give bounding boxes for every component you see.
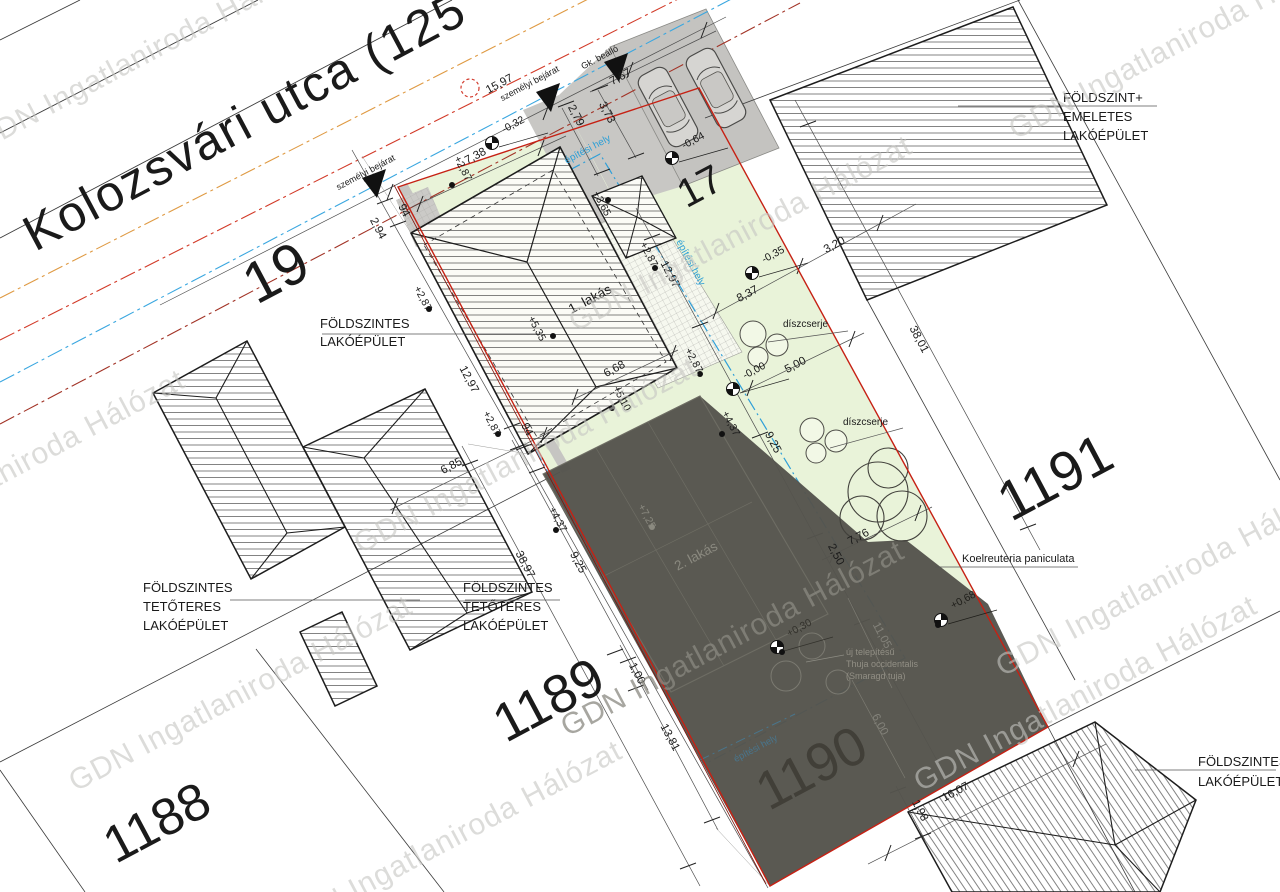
- label-koelreuteria: Koelreuteria paniculata: [962, 553, 1075, 565]
- benchmark-icon: [746, 267, 759, 280]
- site-plan-page: Kolozsvári utca (12519171188118911901191…: [0, 0, 1280, 892]
- label-thuja-l1: új telepítésű: [846, 647, 895, 657]
- label-shrub-2: díszcserje: [843, 417, 888, 428]
- label-thuja-l2: Thuja occidentalis: [846, 659, 919, 669]
- benchmark-icon: [727, 383, 740, 396]
- shrub-icon: [825, 430, 847, 452]
- label-bld3-l2: TETŐTERES: [143, 599, 221, 614]
- label-thuja-l3: (Smaragd tuja): [846, 671, 906, 681]
- label-bld2-l3: LAKÓÉPÜLET: [1063, 128, 1148, 143]
- shrub-icon: [766, 334, 788, 356]
- label-bld3-l1: FÖLDSZINTES: [143, 580, 233, 595]
- label-bld5-l1: FÖLDSZINTES: [1198, 754, 1280, 769]
- label-shrub-1: díszcserje: [783, 319, 828, 330]
- site-plan-drawing: Kolozsvári utca (12519171188118911901191…: [0, 0, 1280, 892]
- label-bld1-l1: FÖLDSZINTES: [320, 316, 410, 331]
- label-bld5-l2: LAKÓÉPÜLET: [1198, 774, 1280, 789]
- benchmark-icon: [666, 152, 679, 165]
- benchmark-icon: [486, 137, 499, 150]
- label-bld3-l3: LAKÓÉPÜLET: [143, 618, 228, 633]
- shrub-icon: [800, 418, 824, 442]
- label-bld1-l2: LAKÓÉPÜLET: [320, 334, 405, 349]
- shrub-icon: [806, 443, 826, 463]
- label-bld4-l1: FÖLDSZINTES: [463, 580, 553, 595]
- label-bld4-l3: LAKÓÉPÜLET: [463, 618, 548, 633]
- shrub-icon: [740, 321, 766, 347]
- label-bld4-l2: TETŐTERES: [463, 599, 541, 614]
